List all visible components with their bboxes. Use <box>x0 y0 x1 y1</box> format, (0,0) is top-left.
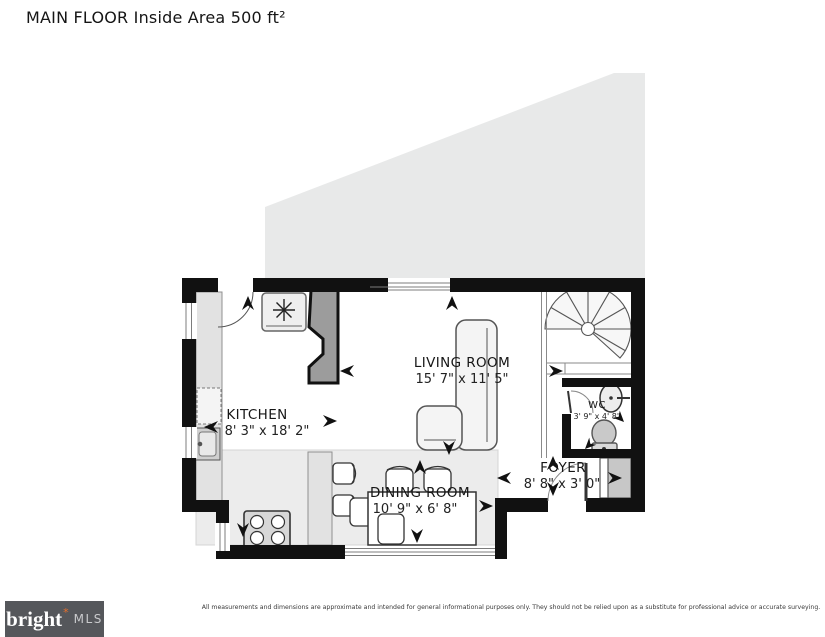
dining-room-label: DINING ROOM <box>370 487 470 501</box>
floor-plan-svg <box>0 0 825 637</box>
spiral-staircase <box>545 286 631 358</box>
window <box>215 523 230 551</box>
living-room-name: LIVING ROOM <box>414 357 510 371</box>
foyer-name: FOYER <box>540 462 586 476</box>
stove-cooktop <box>244 511 290 548</box>
fireplace <box>262 293 306 331</box>
living-arrow-up <box>446 296 458 310</box>
living-room-dims: 15' 7" x 11' 5" <box>416 373 509 386</box>
living-arrow-right <box>549 365 563 377</box>
dining-room-name: DINING ROOM <box>370 487 470 501</box>
kitchen-sink <box>194 428 220 460</box>
logo-brand-text: bright <box>6 609 62 630</box>
kitchen-label: KITCHEN <box>226 409 287 423</box>
disclaimer-text: All measurements and dimensions are appr… <box>202 604 820 611</box>
dishwasher <box>197 388 221 424</box>
wc-dims: 3' 9" x 4' 8" <box>573 413 620 421</box>
foyer-label: FOYER <box>540 462 586 476</box>
foyer-arrow-left <box>497 472 511 484</box>
living-room-label: LIVING ROOM <box>414 357 510 371</box>
chimney-wall <box>309 290 338 383</box>
living-arrow-left <box>340 365 354 377</box>
floorplan-page: { "title": "MAIN FLOOR Inside Area 500 f… <box>0 0 825 637</box>
logo-suffix-text: MLS <box>74 612 103 626</box>
kitchen-name: KITCHEN <box>226 409 287 423</box>
window-wide <box>345 546 495 558</box>
upper-area-outline <box>265 73 645 278</box>
kitchen-dims: 8' 3" x 18' 2" <box>225 425 310 438</box>
window <box>181 303 197 339</box>
wc-label: WC <box>588 401 606 411</box>
logo-star-icon: * <box>63 607 69 618</box>
kitchen-counter-peninsula <box>308 452 332 545</box>
dining-chair <box>378 514 404 544</box>
foyer-dims: 8' 8" x 3' 0" <box>524 478 600 491</box>
kitchen-arrow-right <box>323 415 337 427</box>
dining-room-dims: 10' 9" x 6' 8" <box>373 503 458 516</box>
window <box>181 427 197 458</box>
brightmls-logo: bright * MLS <box>5 601 104 637</box>
